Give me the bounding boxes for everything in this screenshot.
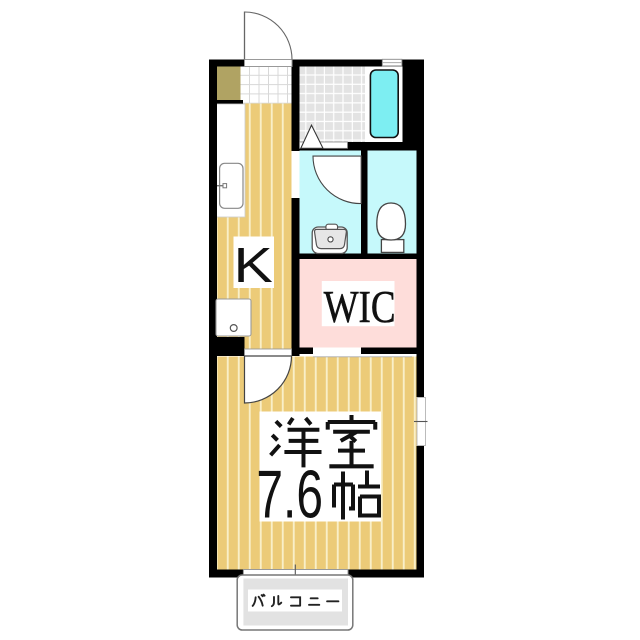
svg-text:WIC: WIC xyxy=(324,281,396,332)
svg-text:K: K xyxy=(234,238,273,293)
svg-text:7.6: 7.6 xyxy=(256,457,323,533)
